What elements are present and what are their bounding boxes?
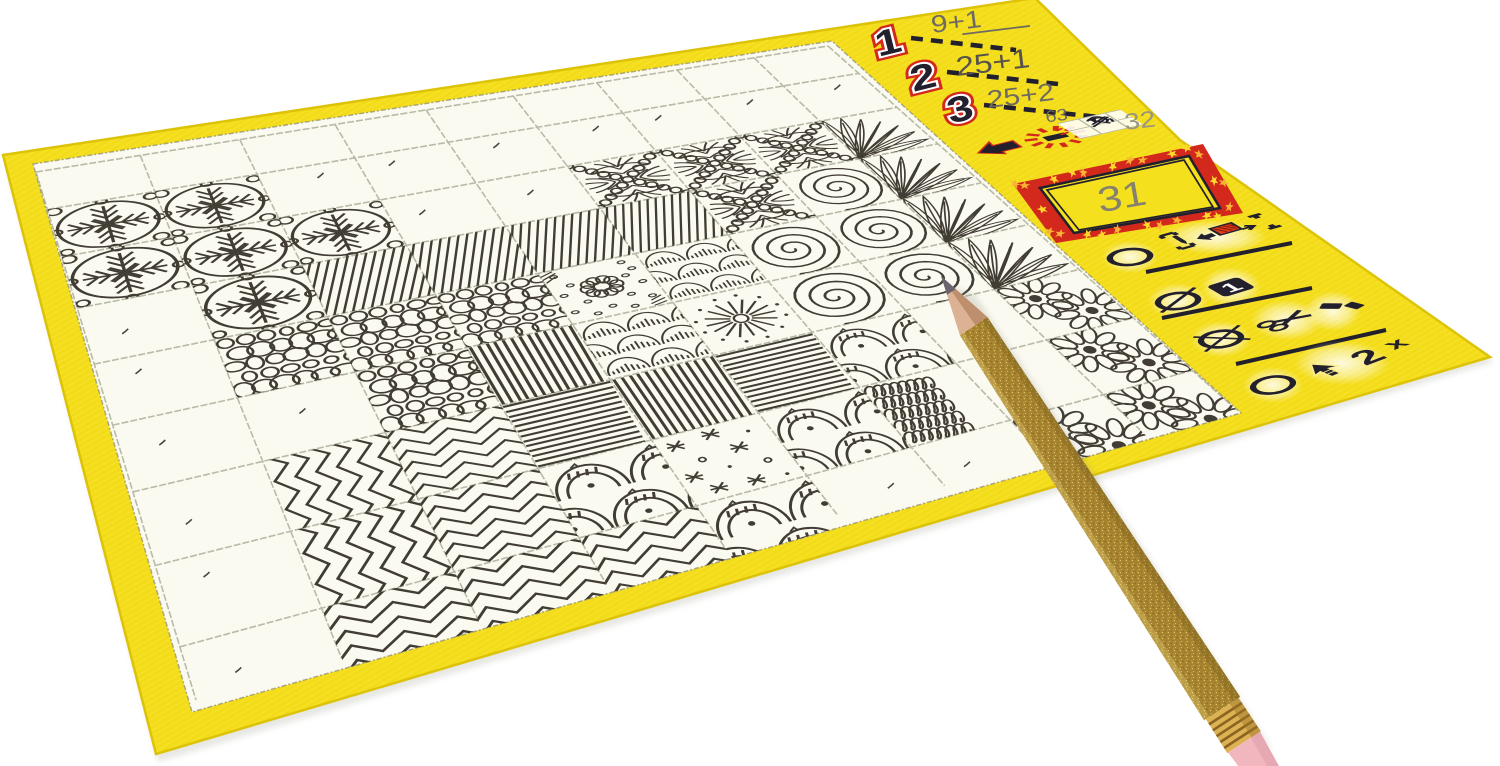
svg-text:32: 32 xyxy=(1123,107,1157,136)
